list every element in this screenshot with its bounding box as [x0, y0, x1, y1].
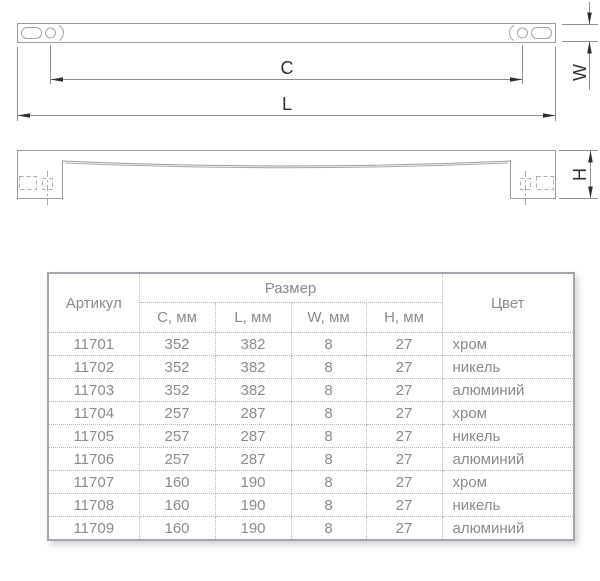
table-row: 11709 160 190 8 27 алюминий	[48, 517, 574, 541]
cell-color: хром	[442, 333, 574, 356]
left-end-arc	[59, 26, 64, 41]
cell-h: 27	[366, 425, 442, 448]
technical-drawing: C L W H	[0, 0, 600, 268]
cell-w: 8	[291, 448, 366, 471]
spec-table: Артикул Размер Цвет C, мм L, мм W, мм H,…	[47, 272, 575, 541]
cell-c: 160	[139, 517, 215, 541]
cell-article: 11702	[48, 356, 139, 379]
right-hole	[518, 28, 528, 38]
cell-color: алюминий	[442, 517, 574, 541]
table-row: 11704 257 287 8 27 хром	[48, 402, 574, 425]
header-c-mm: C, мм	[139, 303, 215, 333]
handle-profile	[18, 151, 556, 199]
cell-w: 8	[291, 402, 366, 425]
cell-c: 160	[139, 494, 215, 517]
arrowhead	[18, 113, 31, 118]
table-row: 11702 352 382 8 27 никель	[48, 356, 574, 379]
cell-h: 27	[366, 494, 442, 517]
cell-w: 8	[291, 333, 366, 356]
cell-l: 190	[215, 471, 291, 494]
cell-article: 11706	[48, 448, 139, 471]
cell-c: 352	[139, 356, 215, 379]
cell-color: никель	[442, 356, 574, 379]
right-slot	[532, 28, 552, 39]
arrowhead	[510, 77, 523, 82]
cell-article: 11708	[48, 494, 139, 517]
arrowhead	[51, 77, 64, 82]
cell-c: 160	[139, 471, 215, 494]
header-h-mm: H, мм	[366, 303, 442, 333]
cell-w: 8	[291, 425, 366, 448]
cell-l: 287	[215, 425, 291, 448]
dim-label-c: C	[281, 58, 294, 78]
left-foot-insert	[20, 177, 37, 190]
table-row: 11701 352 382 8 27 хром	[48, 333, 574, 356]
cell-l: 190	[215, 494, 291, 517]
cell-l: 287	[215, 402, 291, 425]
right-end-arc	[510, 26, 515, 41]
cell-l: 190	[215, 517, 291, 541]
cell-article: 11703	[48, 379, 139, 402]
dim-label-l: L	[282, 94, 292, 114]
cell-article: 11709	[48, 517, 139, 541]
cell-article: 11701	[48, 333, 139, 356]
cell-w: 8	[291, 356, 366, 379]
cell-c: 257	[139, 402, 215, 425]
cell-h: 27	[366, 448, 442, 471]
header-color: Цвет	[442, 273, 574, 333]
cell-h: 27	[366, 471, 442, 494]
cell-color: хром	[442, 471, 574, 494]
top-view	[18, 24, 556, 43]
table-row: 11707 160 190 8 27 хром	[48, 471, 574, 494]
cell-article: 11704	[48, 402, 139, 425]
dimension-w: W	[562, 2, 598, 90]
cell-c: 352	[139, 379, 215, 402]
dimension-c: C	[51, 45, 523, 84]
cell-color: никель	[442, 425, 574, 448]
arrowhead	[587, 42, 592, 54]
cell-article: 11705	[48, 425, 139, 448]
table-row: 11703 352 382 8 27 алюминий	[48, 379, 574, 402]
cell-l: 382	[215, 333, 291, 356]
cell-w: 8	[291, 494, 366, 517]
cell-h: 27	[366, 356, 442, 379]
arrowhead	[543, 113, 556, 118]
table-header-row-1: Артикул Размер Цвет	[48, 273, 574, 303]
cell-h: 27	[366, 402, 442, 425]
left-slot	[22, 28, 42, 39]
header-article: Артикул	[48, 273, 139, 333]
table-row: 11708 160 190 8 27 никель	[48, 494, 574, 517]
cell-article: 11707	[48, 471, 139, 494]
arrowhead	[587, 13, 592, 25]
cell-color: алюминий	[442, 379, 574, 402]
cell-l: 382	[215, 379, 291, 402]
header-l-mm: L, мм	[215, 303, 291, 333]
left-hole	[46, 28, 56, 38]
dim-label-h: H	[570, 168, 590, 181]
cell-color: алюминий	[442, 448, 574, 471]
cell-l: 287	[215, 448, 291, 471]
front-view	[18, 151, 556, 206]
cell-color: хром	[442, 402, 574, 425]
cell-c: 352	[139, 333, 215, 356]
cell-h: 27	[366, 379, 442, 402]
cell-h: 27	[366, 333, 442, 356]
cell-l: 382	[215, 356, 291, 379]
arrowhead	[588, 187, 593, 199]
arrowhead	[588, 151, 593, 163]
cell-color: никель	[442, 494, 574, 517]
right-foot-insert	[537, 177, 554, 190]
table-row: 11706 257 287 8 27 алюминий	[48, 448, 574, 471]
cell-w: 8	[291, 471, 366, 494]
cell-h: 27	[366, 517, 442, 541]
header-w-mm: W, мм	[291, 303, 366, 333]
cell-c: 257	[139, 448, 215, 471]
cell-w: 8	[291, 517, 366, 541]
dim-label-w: W	[570, 64, 590, 81]
bar-outline	[18, 24, 556, 43]
header-size-group: Размер	[139, 273, 442, 303]
cell-w: 8	[291, 379, 366, 402]
cell-c: 257	[139, 425, 215, 448]
table-row: 11705 257 287 8 27 никель	[48, 425, 574, 448]
dimension-h: H	[559, 151, 598, 199]
